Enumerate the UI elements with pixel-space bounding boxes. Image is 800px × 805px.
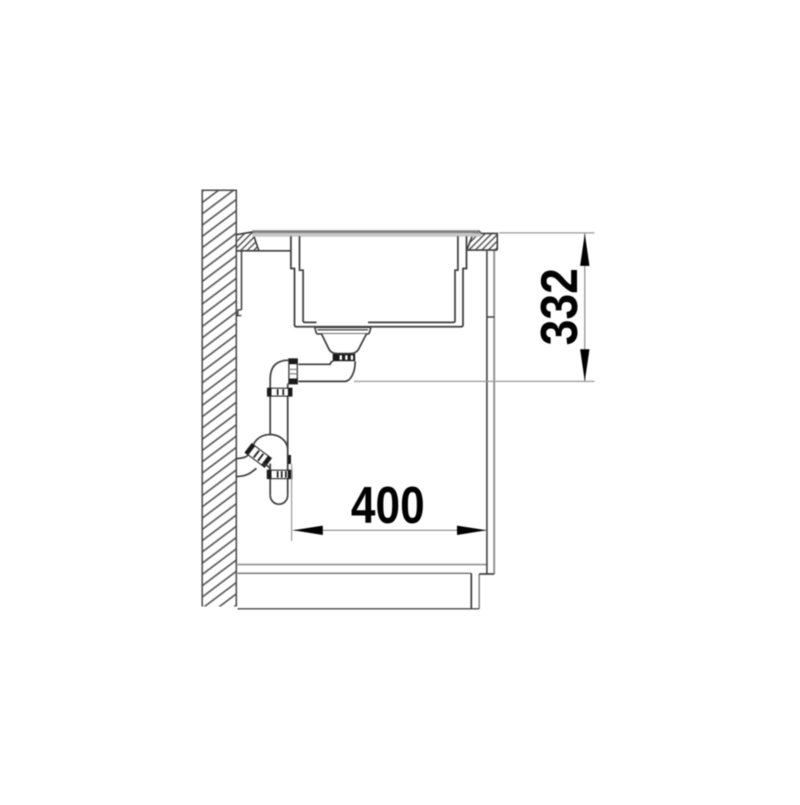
svg-text:332: 332 [530,268,588,345]
svg-text:400: 400 [351,477,425,535]
